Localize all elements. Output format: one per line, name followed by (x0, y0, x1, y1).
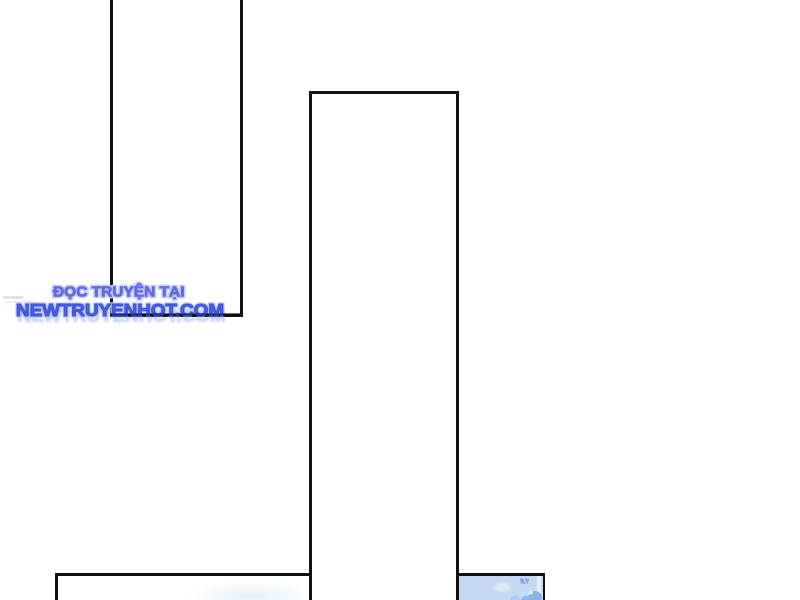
svg-text:ĐỌC TRUYỆN TẠI: ĐỌC TRUYỆN TẠI (53, 283, 185, 301)
svg-text:NEWTRUYENHOT.COM: NEWTRUYENHOT.COM (16, 300, 224, 320)
